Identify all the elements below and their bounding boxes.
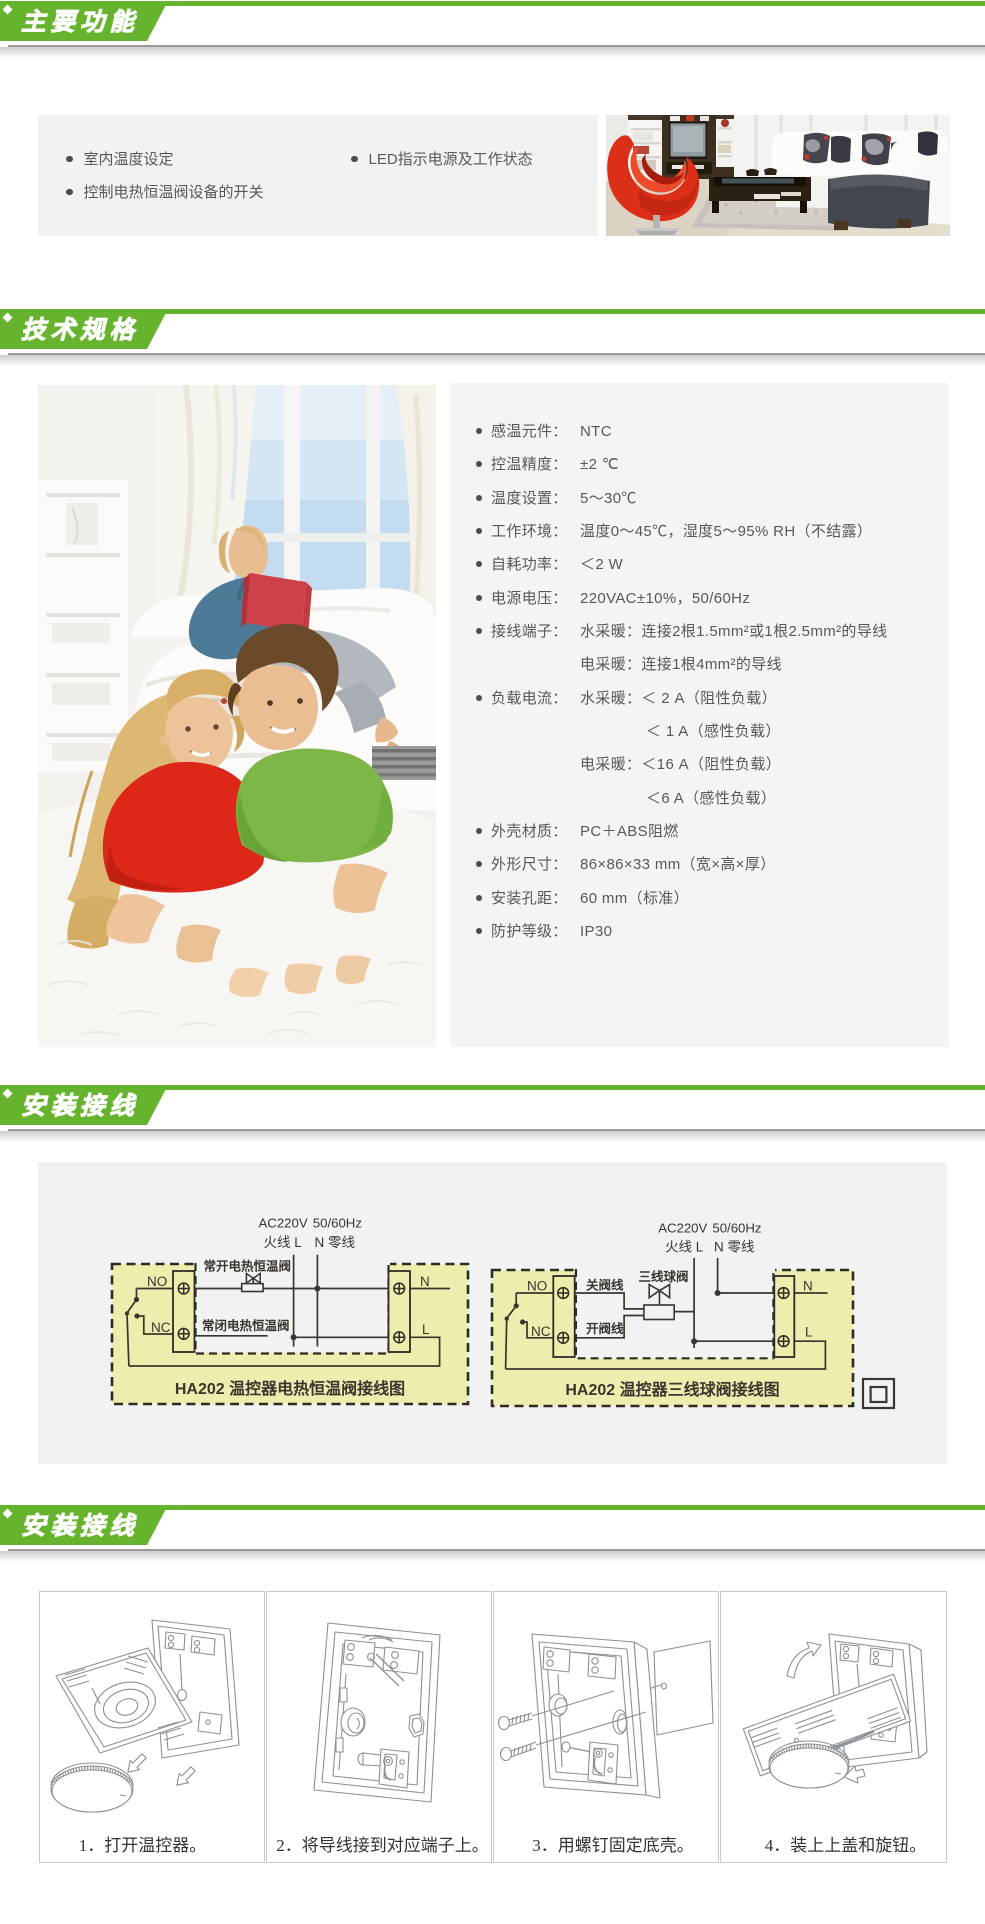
svg-text:HA202 温控器电热恒温阀接线图: HA202 温控器电热恒温阀接线图 xyxy=(175,1379,405,1398)
svg-text:NO: NO xyxy=(147,1274,167,1289)
svg-text:HA202 温控器三线球阀接线图: HA202 温控器三线球阀接线图 xyxy=(565,1380,779,1399)
svg-text:NO: NO xyxy=(527,1279,547,1294)
svg-text:50/60Hz: 50/60Hz xyxy=(712,1221,761,1236)
svg-text:N: N xyxy=(420,1274,430,1289)
svg-text:三线球阀: 三线球阀 xyxy=(639,1269,689,1284)
svg-text:关阀线: 关阀线 xyxy=(586,1278,624,1293)
svg-text:NC: NC xyxy=(531,1324,551,1339)
svg-text:N 零线: N 零线 xyxy=(714,1240,755,1255)
svg-text:L: L xyxy=(422,1322,430,1337)
svg-text:常闭电热恒温阀: 常闭电热恒温阀 xyxy=(202,1318,290,1333)
svg-text:50/60Hz: 50/60Hz xyxy=(313,1216,362,1231)
svg-text:NC: NC xyxy=(151,1320,171,1335)
svg-text:常开电热恒温阀: 常开电热恒温阀 xyxy=(204,1259,292,1274)
svg-text:火线 L: 火线 L xyxy=(665,1240,704,1255)
svg-text:火线 L: 火线 L xyxy=(264,1235,303,1250)
svg-text:AC220V: AC220V xyxy=(259,1216,308,1231)
svg-text:L: L xyxy=(805,1325,813,1340)
svg-text:N: N xyxy=(803,1279,813,1294)
svg-text:开阀线: 开阀线 xyxy=(586,1321,624,1336)
svg-text:N 零线: N 零线 xyxy=(315,1235,356,1250)
svg-text:AC220V: AC220V xyxy=(658,1221,707,1236)
